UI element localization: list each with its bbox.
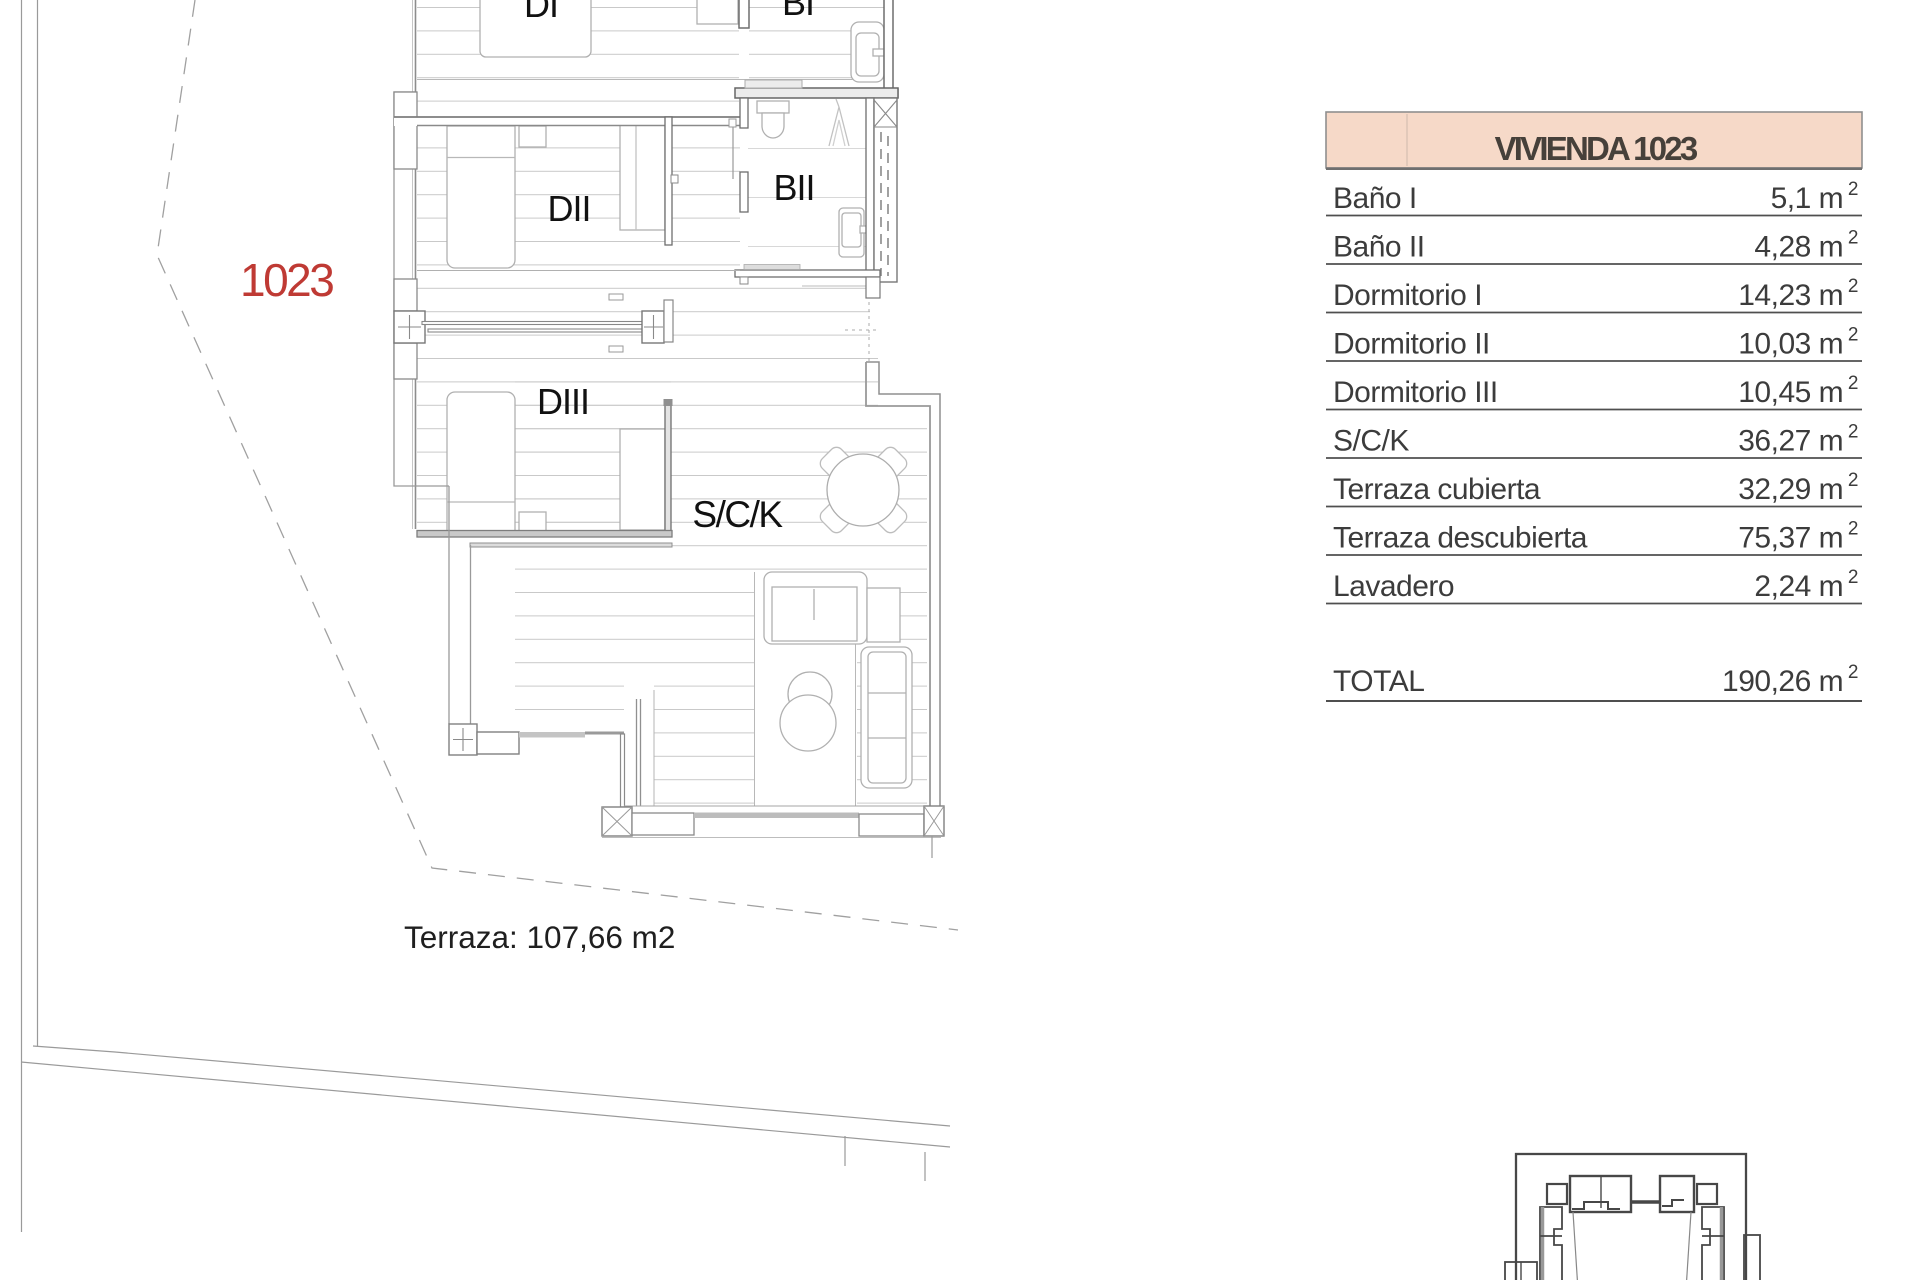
svg-text:190,26 m 2: 190,26 m 2	[1722, 662, 1858, 698]
svg-text:Terraza descubierta: Terraza descubierta	[1333, 522, 1588, 555]
svg-text:1023: 1023	[240, 254, 333, 306]
svg-text:Baño II: Baño II	[1333, 231, 1425, 264]
svg-text:14,23 m 2: 14,23 m 2	[1738, 276, 1858, 312]
svg-text:DIII: DIII	[537, 381, 589, 422]
svg-text:S/C/K: S/C/K	[1333, 425, 1409, 458]
svg-text:2,24 m 2: 2,24 m 2	[1754, 567, 1858, 603]
svg-text:10,03 m 2: 10,03 m 2	[1738, 325, 1858, 361]
svg-text:BI: BI	[782, 0, 814, 23]
svg-text:TOTAL: TOTAL	[1333, 665, 1424, 698]
svg-text:S/C/K: S/C/K	[692, 494, 783, 535]
svg-text:36,27 m 2: 36,27 m 2	[1738, 422, 1858, 458]
svg-text:32,29 m 2: 32,29 m 2	[1738, 470, 1858, 506]
svg-text:DII: DII	[547, 188, 590, 229]
svg-text:5,1 m 2: 5,1 m 2	[1771, 179, 1858, 215]
svg-text:Dormitorio III: Dormitorio III	[1333, 376, 1498, 409]
svg-text:Dormitorio I: Dormitorio I	[1333, 279, 1482, 312]
svg-text:75,37 m 2: 75,37 m 2	[1738, 519, 1858, 555]
svg-text:Terraza cubierta: Terraza cubierta	[1333, 473, 1541, 506]
svg-text:Dormitorio II: Dormitorio II	[1333, 328, 1490, 361]
svg-text:Baño I: Baño I	[1333, 182, 1417, 215]
svg-text:Terraza: 107,66 m2: Terraza: 107,66 m2	[404, 919, 675, 955]
svg-text:10,45 m 2: 10,45 m 2	[1738, 373, 1858, 409]
svg-text:4,28 m 2: 4,28 m 2	[1754, 228, 1858, 264]
svg-text:Lavadero: Lavadero	[1333, 570, 1454, 603]
svg-text:DI: DI	[524, 0, 558, 25]
svg-text:BII: BII	[773, 167, 814, 208]
svg-text:VIVIENDA 1023: VIVIENDA 1023	[1495, 130, 1698, 167]
